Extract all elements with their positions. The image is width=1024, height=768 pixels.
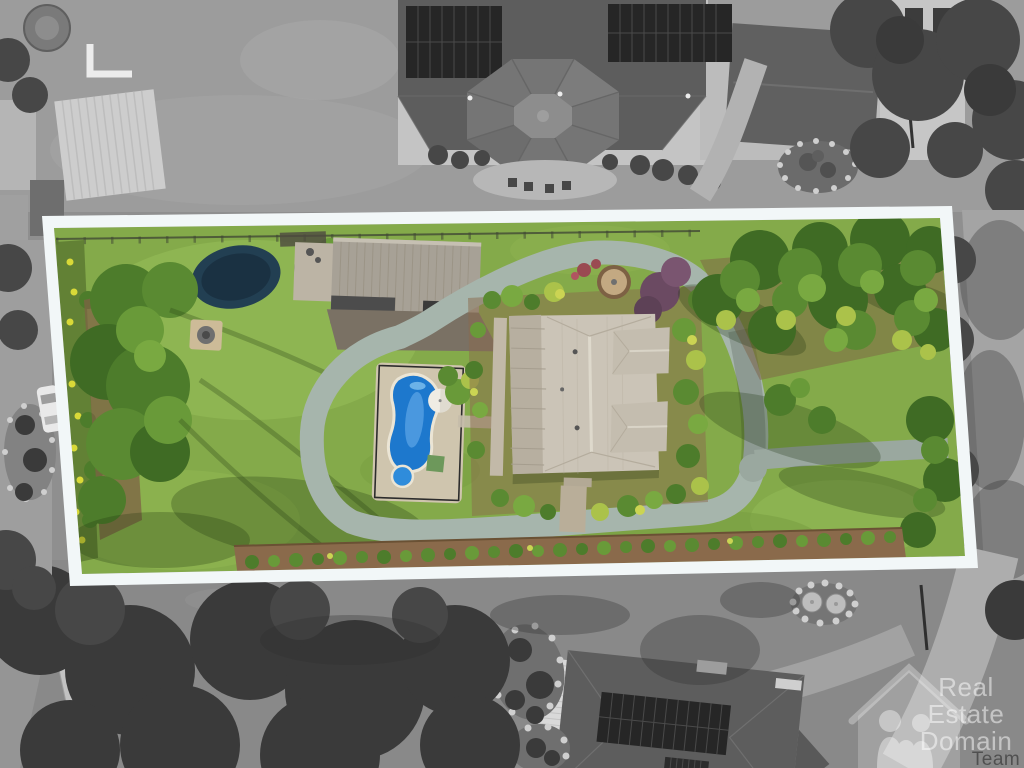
main-house	[490, 310, 671, 490]
gazebo-roof	[467, 59, 619, 173]
green-mat	[426, 455, 445, 473]
neighbor-shed-left	[54, 89, 165, 200]
watermark-line-1: Real	[938, 672, 993, 702]
watermark-line-2: Estate	[928, 699, 1005, 729]
house-steps	[564, 478, 592, 488]
watermark-team-label: Team	[972, 749, 1020, 768]
shed-pad	[293, 242, 337, 301]
aerial-scene: Real Estate Domain Team	[0, 0, 1024, 768]
aerial-property-photo: Real Estate Domain Team	[0, 0, 1024, 768]
fire-pit	[189, 319, 223, 351]
front-path	[559, 486, 587, 533]
property-color-area	[40, 200, 980, 591]
spa	[392, 466, 414, 488]
